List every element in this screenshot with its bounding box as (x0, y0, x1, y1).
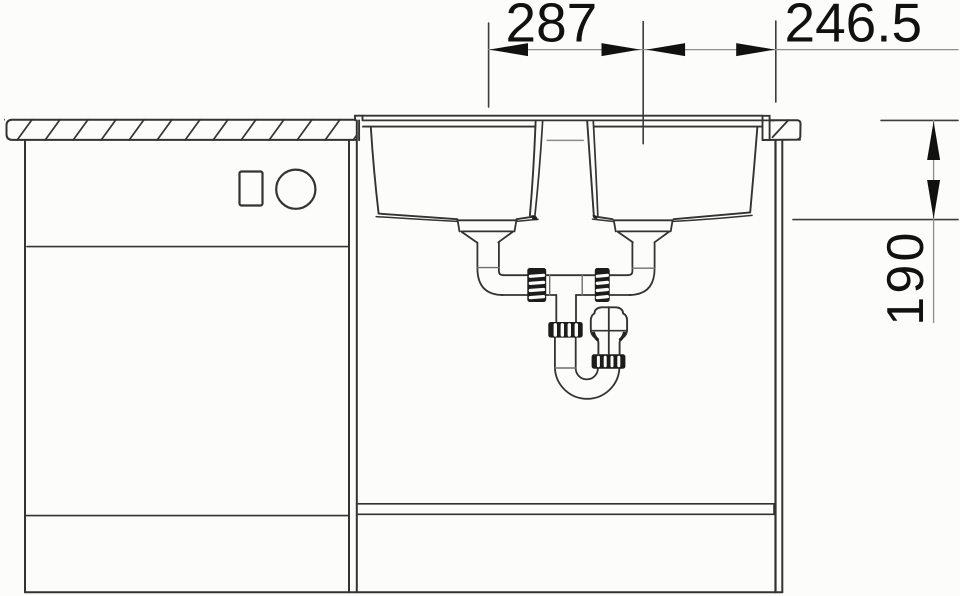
svg-text:287: 287 (506, 0, 598, 54)
svg-text:246.5: 246.5 (785, 0, 923, 54)
svg-text:190: 190 (877, 229, 935, 325)
